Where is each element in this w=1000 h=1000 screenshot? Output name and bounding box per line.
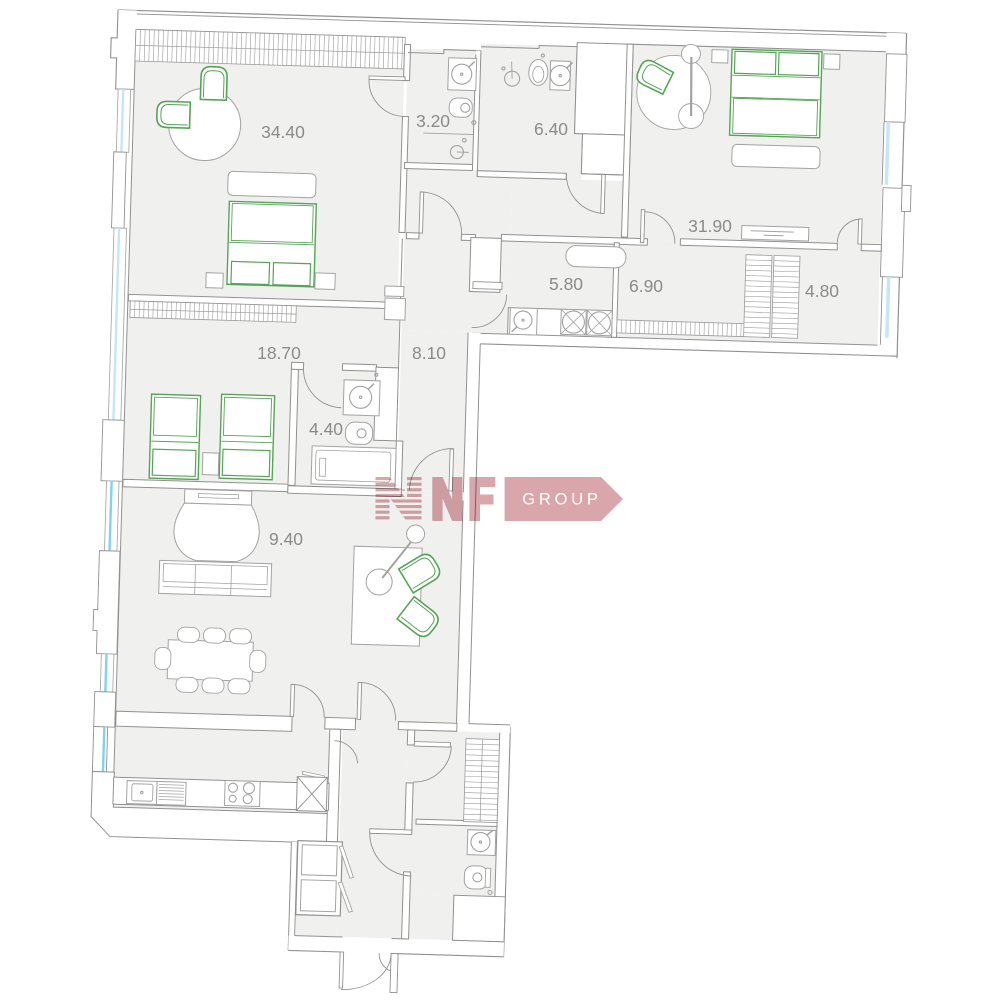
svg-text:4.40: 4.40 (309, 419, 343, 439)
svg-text:31.90: 31.90 (688, 216, 732, 236)
svg-text:18.70: 18.70 (257, 343, 301, 363)
svg-text:GROUP: GROUP (522, 491, 602, 509)
svg-text:34.40: 34.40 (261, 122, 305, 142)
svg-text:6.90: 6.90 (629, 276, 663, 296)
svg-text:8.10: 8.10 (412, 343, 446, 363)
svg-text:4.80: 4.80 (805, 281, 839, 301)
svg-text:6.40: 6.40 (534, 119, 568, 139)
svg-text:3.20: 3.20 (416, 111, 450, 131)
svg-text:5.80: 5.80 (549, 274, 583, 294)
svg-text:9.40: 9.40 (269, 529, 303, 549)
